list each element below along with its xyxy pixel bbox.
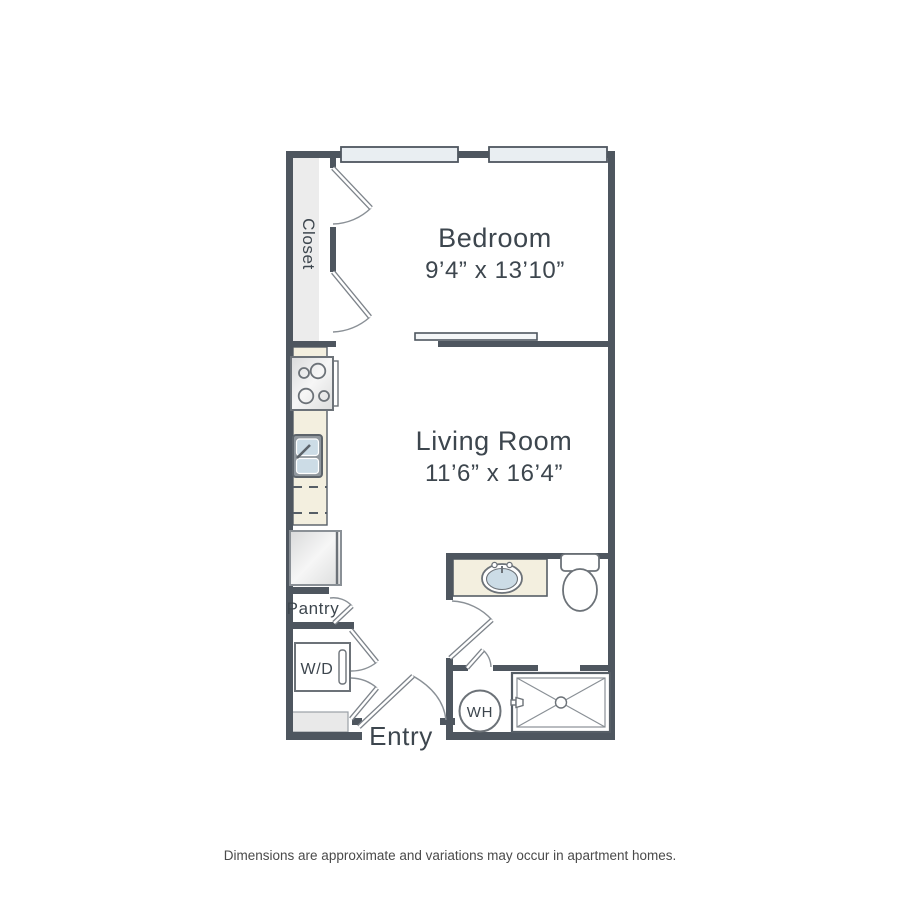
bedroom-label: Bedroom <box>438 223 552 253</box>
disclaimer-text: Dimensions are approximate and variation… <box>0 848 900 863</box>
wd-door-leaf <box>351 630 377 662</box>
closet-label: Closet <box>299 218 318 270</box>
closet-door-leaf <box>333 168 371 208</box>
wall-segment <box>446 553 453 600</box>
living-room-label: Living Room <box>416 426 573 456</box>
window <box>489 147 607 162</box>
wall-segment <box>330 227 336 272</box>
wall-segment <box>446 732 615 740</box>
wall-segment <box>493 665 538 671</box>
toilet-bowl <box>563 569 597 611</box>
sink-basin <box>297 459 319 474</box>
wall-segment <box>438 341 615 347</box>
kitchen <box>290 357 341 585</box>
entry-label: Entry <box>369 721 433 751</box>
bedroom-dimensions: 9’4” x 13’10” <box>425 257 565 284</box>
sliding-door-panel <box>415 333 537 340</box>
entry-door-swing <box>413 676 446 720</box>
wd-label: W/D <box>301 661 334 678</box>
wall-segment <box>286 587 329 594</box>
wh-door-swing <box>483 650 491 667</box>
wall-segment <box>446 665 468 671</box>
faucet-knob <box>492 562 497 567</box>
wall-segment <box>286 622 354 629</box>
wd-door-swing <box>351 678 377 688</box>
closet-door-leaf <box>333 272 370 317</box>
floor-plan-page: W/D WH Bedroom 9’4” x 13’10” Living Room… <box>0 0 900 900</box>
shower-head-icon <box>511 700 516 705</box>
living-room-dimensions: 11’6” x 16’4” <box>425 460 563 487</box>
wall-segment <box>286 732 362 740</box>
wd-door-swing <box>351 662 377 671</box>
wd-closet-shelf <box>291 712 348 732</box>
bathroom-door-swing <box>452 601 492 620</box>
closet-door-swing <box>333 317 370 332</box>
laundry-closet: W/D <box>295 643 350 691</box>
wall-segment <box>330 158 336 168</box>
floor-plan-drawing: W/D WH Bedroom 9’4” x 13’10” Living Room… <box>0 0 900 900</box>
washer-dryer-handle <box>339 650 346 684</box>
window <box>341 147 458 162</box>
faucet-knob <box>507 562 512 567</box>
wall-segment <box>286 341 336 347</box>
wall-segment <box>286 151 293 740</box>
pantry-label: Pantry <box>287 599 340 618</box>
wh-door-leaf <box>467 650 483 668</box>
shower-drain <box>556 697 567 708</box>
shower-head-icon <box>516 698 523 708</box>
closet-door-swing <box>333 208 371 224</box>
stove <box>291 357 333 410</box>
wall-segment <box>608 151 615 740</box>
wh-label: WH <box>467 704 494 721</box>
refrigerator <box>290 531 341 585</box>
wall-segment <box>580 665 615 671</box>
